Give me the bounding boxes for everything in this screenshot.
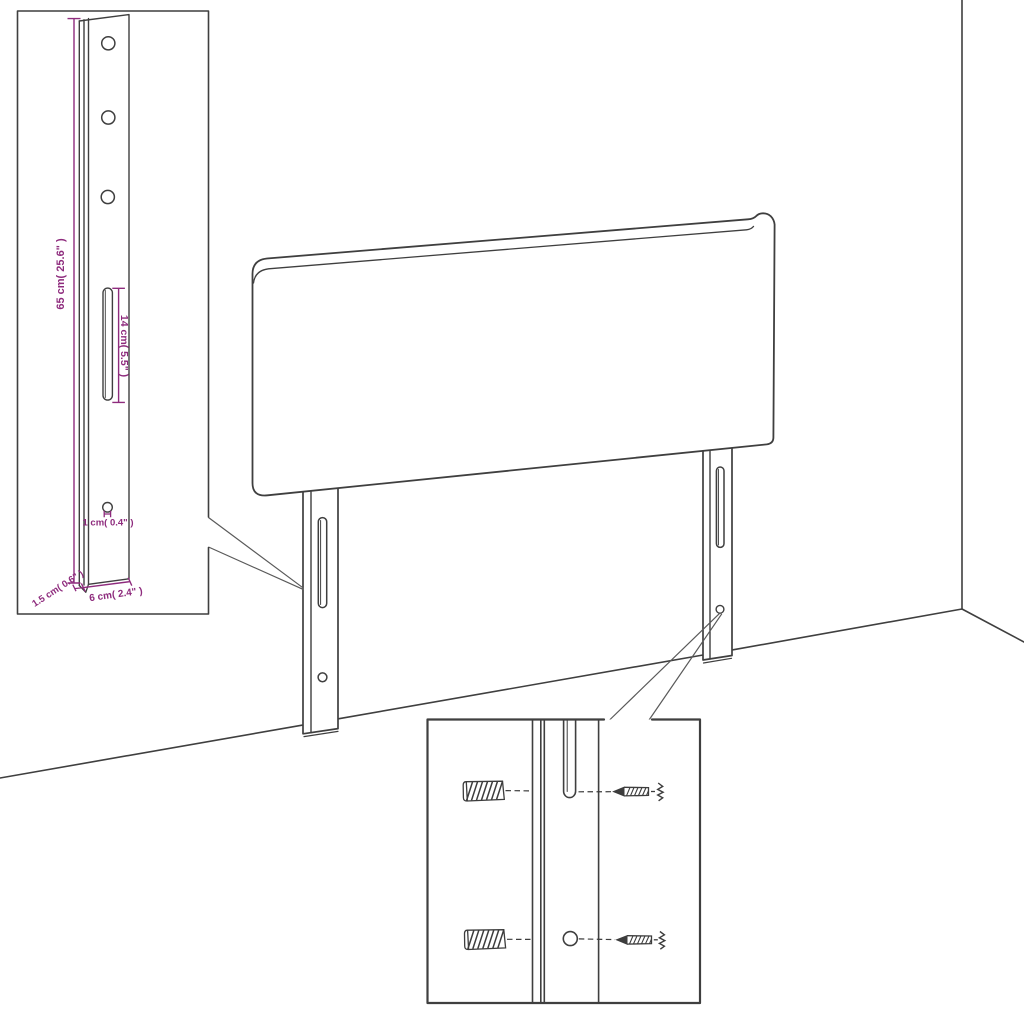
panel-outline [253,213,775,495]
slot-length-dimension-label: 14 cm( 5.5" ) [118,315,130,377]
inset-leg-hole-4 [103,503,113,513]
inset-leg-outline [79,15,129,585]
hole-diameter-dimension-label: 1 cm( 0.4" ) [83,518,134,529]
headboard-left-leg [303,478,338,737]
inset-leg-side-lines [79,19,88,586]
headboard-assembly-diagram [0,0,1024,1024]
callout-lines [209,518,722,722]
inset-leg-hole-2 [102,111,115,124]
height-dimension-line [68,19,81,583]
inset-leg-slot [103,288,112,400]
diagram-canvas: 65 cm( 25.6" ) 14 cm( 5.5" ) 1 cm( 0.4" … [0,0,1024,1024]
headboard-panel [253,213,775,495]
dimension-lines [68,19,132,592]
height-dimension-label: 65 cm( 25.6" ) [55,238,67,309]
inset-leg-hole-1 [102,37,115,50]
inset-leg-drawing [79,15,129,593]
hardware-detail-inset [428,720,701,1004]
inset-to-left-leg-callout [209,518,304,590]
inset-leg-hole-3 [101,190,114,203]
floor-line-right [962,609,1024,642]
left-leg-body [303,478,338,734]
right-leg-body [703,440,732,660]
headboard-right-leg [703,440,732,663]
